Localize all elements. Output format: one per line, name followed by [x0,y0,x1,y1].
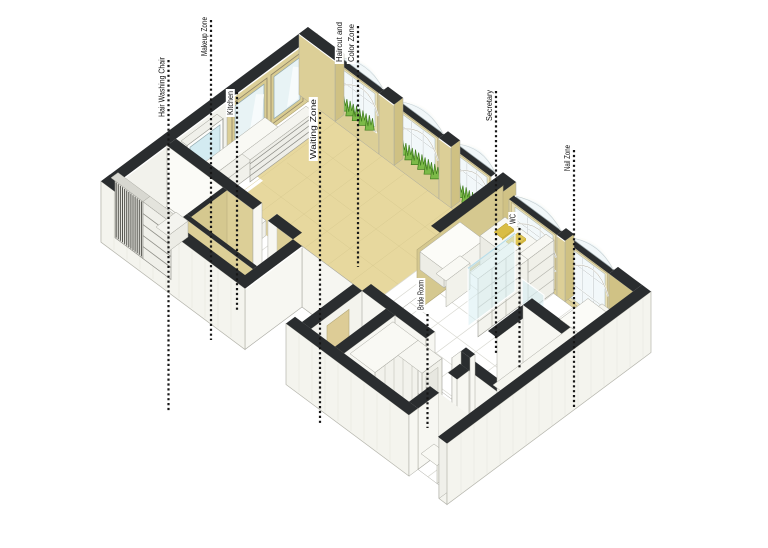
svg-text:Haircut and: Haircut and [335,22,344,62]
svg-text:Secretary: Secretary [485,90,494,121]
svg-text:Kitchen: Kitchen [226,91,235,115]
svg-text:Waiting Zone: Waiting Zone [309,99,318,159]
svg-text:Hair Washing Chair: Hair Washing Chair [158,57,167,117]
svg-text:WC: WC [509,214,518,224]
svg-text:Nail Zone: Nail Zone [563,145,572,171]
svg-text:Color Zone: Color Zone [347,24,356,62]
svg-text:Bride Room: Bride Room [417,280,426,310]
svg-text:Makeup Zone: Makeup Zone [200,17,209,56]
